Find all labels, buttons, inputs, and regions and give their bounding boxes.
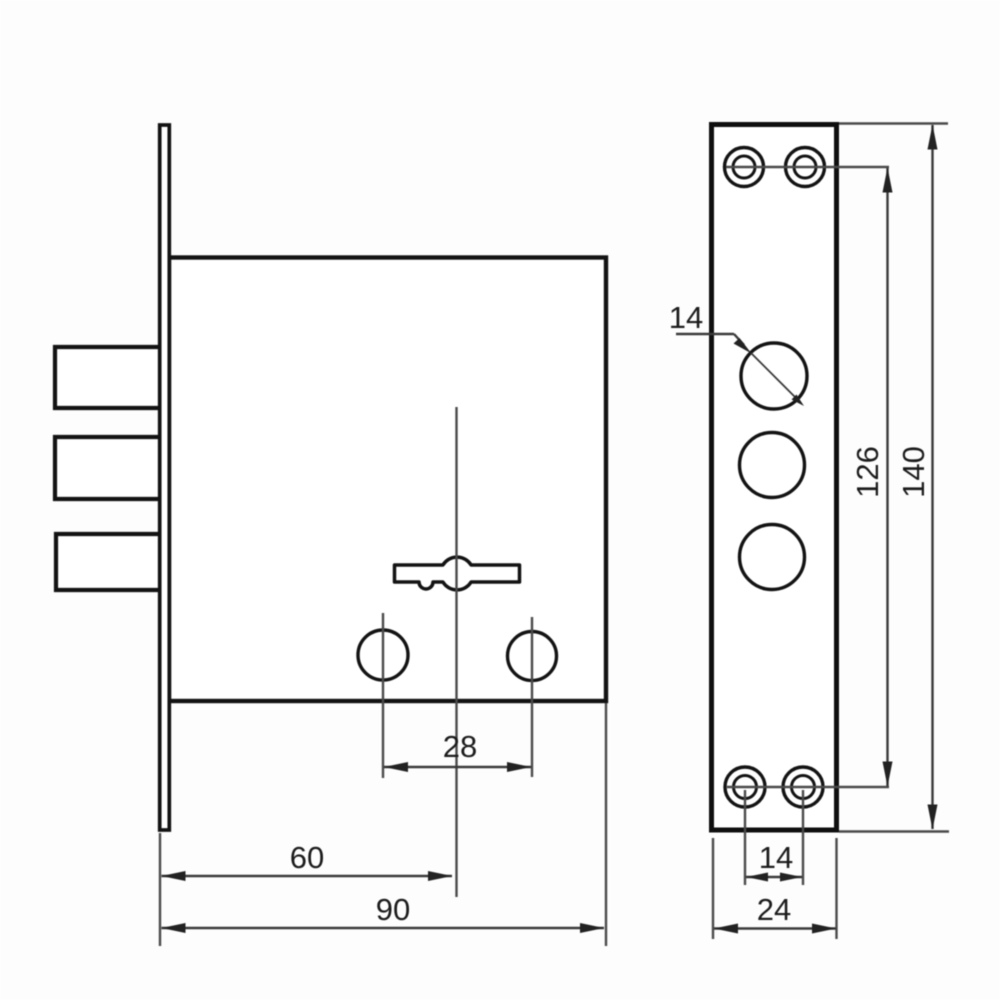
svg-text:14: 14 (759, 840, 793, 875)
svg-text:126: 126 (850, 446, 885, 498)
svg-text:28: 28 (443, 729, 477, 764)
svg-text:140: 140 (896, 446, 931, 498)
svg-text:14: 14 (669, 300, 703, 335)
svg-text:60: 60 (290, 840, 324, 875)
svg-text:24: 24 (757, 892, 791, 927)
svg-text:90: 90 (376, 892, 410, 927)
